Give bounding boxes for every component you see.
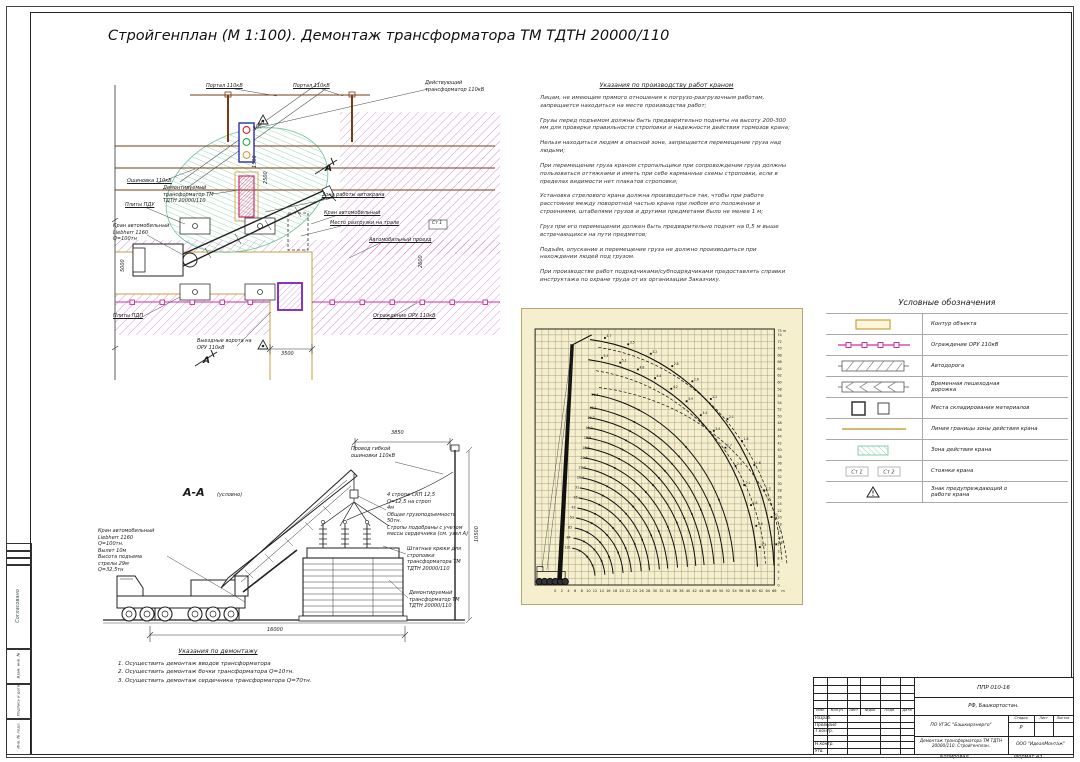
svg-text:15.8: 15.8 <box>584 436 591 440</box>
tb-sheets-h: Листов <box>1053 717 1073 721</box>
demontage-note-item: 2. Осуществить демонтаж бочки трансформа… <box>118 668 418 676</box>
svg-text:2.2: 2.2 <box>712 395 717 399</box>
dim-16000: 16000 <box>267 628 283 633</box>
dim-3850: 3850 <box>391 431 404 436</box>
svg-text:26: 26 <box>777 495 781 499</box>
legend-item-label: Контур объекта <box>923 321 1068 327</box>
label-work-zone: Зона работы автокрана <box>322 192 385 199</box>
legend: Условные обозначения Контур объектаОграж… <box>826 298 1068 503</box>
svg-text:Ст 2: Ст 2 <box>883 470 894 476</box>
crane-instructions: Указания по производству работ краном Ли… <box>540 82 793 292</box>
svg-text:2.4: 2.4 <box>737 462 742 466</box>
svg-text:1.6: 1.6 <box>758 522 763 526</box>
svg-text:56: 56 <box>739 589 743 593</box>
instruction-paragraph: Лицам, не имеющим прямого отношения к по… <box>540 95 793 111</box>
svg-text:0: 0 <box>777 583 779 587</box>
svg-text:2.8: 2.8 <box>674 362 679 366</box>
label-road: Автомобильный проезд <box>369 237 431 244</box>
svg-text:3.7: 3.7 <box>606 334 611 338</box>
svg-text:14: 14 <box>599 589 604 593</box>
svg-text:12.1: 12.1 <box>589 406 596 410</box>
sheet-title: Стройгенплан (М 1:100). Демонтаж трансфо… <box>108 28 669 44</box>
warning-symbol-icon <box>826 482 923 502</box>
label-portal-left: Портал 110кВ <box>206 83 243 90</box>
svg-text:62: 62 <box>777 374 781 378</box>
label-portal-right: Портал 110кВ <box>293 83 330 90</box>
section-mark-a-bottom: А <box>203 356 210 368</box>
dim-3500: 3500 <box>281 352 294 357</box>
tb-stage-h: Стадия <box>1008 717 1034 721</box>
svg-text:54: 54 <box>777 401 782 405</box>
tb-col-list: Лист <box>847 709 860 713</box>
svg-text:1.6: 1.6 <box>756 461 761 465</box>
label-transformer: Демонтируемый трансформатор ТМ ТДТН 2000… <box>409 590 485 610</box>
svg-text:36: 36 <box>777 462 781 466</box>
crane-load-chart: 0246810121416182022242628303234363840424… <box>521 308 803 605</box>
label-hooks: Штатные крюки для строповки трансформато… <box>407 546 487 572</box>
walkway-symbol-icon <box>826 377 923 397</box>
svg-text:4: 4 <box>567 589 570 593</box>
dim-5000: 5000 <box>121 259 126 272</box>
svg-text:10: 10 <box>586 589 590 593</box>
svg-text:101: 101 <box>565 545 571 549</box>
svg-text:84: 84 <box>566 535 570 539</box>
svg-text:52: 52 <box>726 589 730 593</box>
tb-role-utv: Утв. <box>815 749 824 754</box>
legend-item: Знак предупреждающий о работе крана <box>826 482 1068 503</box>
tb-doc-title: Демонтаж трансформатора ТМ ТДТН 20000/11… <box>915 739 1007 748</box>
strip-inv: Инв. № подл. <box>16 718 21 754</box>
fence-symbol-icon <box>826 335 923 355</box>
svg-text:44: 44 <box>777 435 782 439</box>
legend-item-label: Ограждение ОРУ 110кВ <box>923 342 1068 348</box>
svg-text:42: 42 <box>777 441 781 445</box>
svg-text:4.2: 4.2 <box>673 385 678 389</box>
tb-role-prover: Проверил <box>815 723 836 728</box>
svg-text:0: 0 <box>554 589 556 593</box>
svg-text:38: 38 <box>777 455 781 459</box>
tb-sheet-h: Лист <box>1034 717 1053 721</box>
svg-text:6: 6 <box>574 589 576 593</box>
legend-item-label: Знак предупреждающий о работе крана <box>923 486 1068 499</box>
demontage-note-item: 3. Осуществить демонтаж сердечника транс… <box>118 677 418 685</box>
svg-text:26.1: 26.1 <box>577 476 584 480</box>
svg-text:31: 31 <box>575 486 579 490</box>
title-block: Изм. Кол.уч Лист №док Подп. Дата Разраб.… <box>813 677 1074 755</box>
svg-text:2: 2 <box>561 589 563 593</box>
svg-text:0.8: 0.8 <box>778 540 783 544</box>
svg-text:64: 64 <box>765 589 770 593</box>
svg-text:2.6: 2.6 <box>694 377 699 381</box>
section-view: А-А (условно) Кран автомобильный Liebher… <box>95 430 507 662</box>
svg-text:48: 48 <box>777 421 781 425</box>
svg-text:6: 6 <box>777 563 779 567</box>
dim-2600: 2600 <box>419 255 424 268</box>
label-stand1: Ст 1 <box>432 221 442 227</box>
svg-text:62: 62 <box>759 589 763 593</box>
svg-text:4.4: 4.4 <box>657 374 662 378</box>
legend-title: Условные обозначения <box>826 298 1068 307</box>
svg-text:4: 4 <box>777 570 780 574</box>
instruction-paragraph: Грузы перед подъемом должны быть предвар… <box>540 118 793 134</box>
svg-text:54: 54 <box>732 589 737 593</box>
copied-label: Копировал <box>940 754 969 760</box>
svg-text:70: 70 <box>777 347 781 351</box>
svg-text:24: 24 <box>777 502 782 506</box>
label-crane-spec: Кран автомобильный Liebherr 1160 Q=100тн… <box>98 528 168 574</box>
svg-text:65: 65 <box>568 525 572 529</box>
tb-col-koluch: Кол.уч <box>827 709 847 713</box>
svg-text:46: 46 <box>706 589 710 593</box>
legend-item: Места складирования материалов <box>826 398 1068 419</box>
road-symbol-icon <box>826 356 923 376</box>
svg-text:42: 42 <box>692 589 696 593</box>
tb-col-podp: Подп. <box>880 709 900 713</box>
svg-text:30: 30 <box>653 589 657 593</box>
instruction-paragraph: Груз при его перемещении должен быть пре… <box>540 224 793 240</box>
svg-text:1.1: 1.1 <box>773 513 778 517</box>
svg-text:60: 60 <box>752 589 756 593</box>
svg-text:5.1: 5.1 <box>622 359 627 363</box>
demontage-notes-title: Указания по демонтажу <box>118 648 318 655</box>
svg-text:1.8: 1.8 <box>753 501 758 505</box>
svg-text:66: 66 <box>777 360 781 364</box>
legend-item: Контур объекта <box>826 313 1068 335</box>
stands-symbol-icon: Ст 1Ст 2 <box>826 461 923 481</box>
tb-stage-value: Р <box>1008 726 1034 732</box>
svg-text:34: 34 <box>666 589 671 593</box>
instructions-title: Указания по производству работ краном <box>540 82 793 89</box>
dim-10500: 10500 <box>475 526 480 542</box>
legend-item: Временная пешеходная дорожка <box>826 377 1068 398</box>
svg-text:40: 40 <box>686 589 690 593</box>
svg-text:14.2: 14.2 <box>585 426 592 430</box>
svg-text:11.4: 11.4 <box>591 393 598 397</box>
svg-text:16: 16 <box>606 589 610 593</box>
svg-text:Ст 1: Ст 1 <box>851 470 862 476</box>
label-crane-plan: Кран автомобильный Liebherr 1160 Q=100тн <box>113 223 173 243</box>
svg-text:24: 24 <box>633 589 638 593</box>
svg-text:22.7: 22.7 <box>578 466 585 470</box>
format-label: Формат А3 <box>1014 754 1042 760</box>
svg-text:8: 8 <box>777 556 779 560</box>
label-oshinovka: Ошиновка 110кВ <box>127 178 172 185</box>
tb-company: ООО "ИдеалМонтаж" <box>1008 743 1073 748</box>
svg-text:3.0: 3.0 <box>715 427 720 431</box>
tb-col-ndok: №док <box>860 709 880 713</box>
instruction-paragraph: При производстве работ подрядчиками/субп… <box>540 269 793 285</box>
svg-text:50: 50 <box>719 589 723 593</box>
legend-item-label: Автодорога <box>923 363 1068 369</box>
svg-text:32: 32 <box>659 589 663 593</box>
tb-object: ПО УГЭС "Башкирэнерго" <box>914 723 1008 728</box>
tb-location: РФ, Башкортостан. <box>914 704 1073 710</box>
storage-symbol-icon <box>826 398 923 418</box>
svg-text:28: 28 <box>646 589 650 593</box>
legend-item: Зона действия крана <box>826 440 1068 461</box>
svg-text:2.7: 2.7 <box>727 444 732 448</box>
drawing-sheet: Стройгенплан (М 1:100). Демонтаж трансфо… <box>0 0 1080 762</box>
legend-item: Линия границы зоны действия крана <box>826 419 1068 440</box>
instruction-paragraph: Нельзя находиться людям в опасной зоне, … <box>540 140 793 156</box>
svg-text:3.4: 3.4 <box>702 411 707 415</box>
svg-text:75 m: 75 m <box>777 329 787 333</box>
label-fence: Ограждение ОРУ 110кВ <box>373 313 436 320</box>
instruction-paragraph: Подъём, опускание и перемещение груза не… <box>540 247 793 263</box>
svg-text:74: 74 <box>777 333 782 337</box>
svg-text:58: 58 <box>746 589 750 593</box>
svg-text:56: 56 <box>777 394 781 398</box>
legend-item-label: Зона действия крана <box>923 447 1068 453</box>
legend-item-label: Линия границы зоны действия крана <box>923 426 1068 432</box>
strip-soglasovano: Согласовано <box>15 576 21 636</box>
svg-text:18: 18 <box>613 589 617 593</box>
tb-col-izm: Изм. <box>814 709 827 713</box>
tb-col-data: Дата <box>900 709 914 713</box>
legend-item: Автодорога <box>826 356 1068 377</box>
section-mark-a-top: А <box>325 164 332 176</box>
svg-text:48: 48 <box>712 589 716 593</box>
tb-role-tkontr: Т.контр. <box>815 729 833 734</box>
legend-item: Ст 1Ст 2Стоянки крана <box>826 461 1068 482</box>
label-wire: Провод гибкой ошиновки 110кВ <box>351 446 421 459</box>
tb-role-razrab: Разраб. <box>815 716 831 721</box>
svg-text:1.3: 1.3 <box>761 543 766 547</box>
svg-text:26: 26 <box>639 589 643 593</box>
svg-text:42: 42 <box>572 506 576 510</box>
svg-text:2.1: 2.1 <box>729 415 734 419</box>
svg-text:52: 52 <box>777 408 781 412</box>
site-plan: Портал 110кВ Портал 110кВ Действующий тр… <box>85 72 505 384</box>
svg-text:20: 20 <box>619 589 623 593</box>
label-slings: 4 стропа СКП 12,5 Q=12,5 на строп 4м Общ… <box>387 492 479 538</box>
dim-1500: 1500 <box>253 155 258 168</box>
boundary-symbol-icon <box>826 419 923 439</box>
svg-text:58: 58 <box>777 387 781 391</box>
svg-text:3.5: 3.5 <box>630 340 635 344</box>
svg-text:22: 22 <box>626 589 630 593</box>
svg-text:1.8: 1.8 <box>744 437 749 441</box>
tb-doc-number: ППР 010-16 <box>914 685 1073 691</box>
demontage-note-item: 1. Осуществить демонтаж вводов трансформ… <box>118 660 418 668</box>
demontage-notes: Указания по демонтажу 1. Осуществить дем… <box>118 648 418 685</box>
svg-text:18: 18 <box>777 522 781 526</box>
svg-text:72: 72 <box>777 340 781 344</box>
instruction-paragraph: При перемещении груза краном стропальщик… <box>540 163 793 186</box>
svg-text:4.8: 4.8 <box>639 365 644 369</box>
svg-text:5.5: 5.5 <box>604 354 609 358</box>
svg-text:30: 30 <box>777 482 781 486</box>
svg-text:8: 8 <box>581 589 583 593</box>
svg-text:3.2: 3.2 <box>652 350 657 354</box>
svg-text:36: 36 <box>573 496 577 500</box>
svg-text:46: 46 <box>777 428 781 432</box>
label-plates-bottom: Плиты ПДП <box>113 313 143 320</box>
legend-item-label: Места складирования материалов <box>923 405 1068 411</box>
label-unload-place: Место разгрузки на трале <box>330 220 399 227</box>
label-gates: Выездные ворота на ОРУ 110кВ <box>197 338 259 351</box>
svg-text:2: 2 <box>777 577 779 581</box>
instruction-paragraph: Установка стрелового крана должна произв… <box>540 193 793 216</box>
svg-text:38: 38 <box>679 589 683 593</box>
label-plates-top: Плиты ПДУ <box>125 202 154 209</box>
legend-item: Ограждение ОРУ 110кВ <box>826 335 1068 356</box>
svg-text:64: 64 <box>777 367 782 371</box>
label-demounted-transformer: Демонтируемый трансформатор ТМ ТДТН 2000… <box>163 185 225 205</box>
tb-role-nkontr: Н.контр. <box>815 742 834 747</box>
svg-text:44: 44 <box>699 589 704 593</box>
svg-text:18.5: 18.5 <box>582 446 589 450</box>
svg-text:m: m <box>781 589 785 593</box>
svg-text:2.1: 2.1 <box>746 481 751 485</box>
svg-text:1.3: 1.3 <box>766 486 771 490</box>
label-acting-transformer: Действующий трансформатор 110кВ <box>425 80 497 93</box>
svg-text:68: 68 <box>777 353 781 357</box>
svg-text:40: 40 <box>777 448 781 452</box>
svg-text:3.9: 3.9 <box>688 397 693 401</box>
svg-text:66: 66 <box>772 589 776 593</box>
contour-symbol-icon <box>826 314 923 334</box>
legend-item-label: Временная пешеходная дорожка <box>923 381 1068 394</box>
svg-text:60: 60 <box>777 381 781 385</box>
svg-text:20.5: 20.5 <box>580 456 587 460</box>
svg-text:28: 28 <box>777 489 781 493</box>
legend-item-label: Стоянки крана <box>923 468 1068 474</box>
svg-text:36: 36 <box>672 589 676 593</box>
strip-podpis: Подпись и дата <box>16 683 21 719</box>
section-title: А-А <box>183 486 205 500</box>
section-subtitle: (условно) <box>217 492 242 499</box>
svg-text:50: 50 <box>777 414 781 418</box>
svg-text:13.2: 13.2 <box>587 416 594 420</box>
dim-2500: 2500 <box>264 171 269 184</box>
label-crane-dashed: Кран автомобильный <box>324 210 380 217</box>
strip-vzam: Взам. инв. № <box>16 648 21 684</box>
zone-symbol-icon <box>826 440 923 460</box>
svg-text:34: 34 <box>777 468 782 472</box>
svg-text:12: 12 <box>593 589 597 593</box>
svg-text:51: 51 <box>570 516 574 520</box>
svg-text:32: 32 <box>777 475 781 479</box>
